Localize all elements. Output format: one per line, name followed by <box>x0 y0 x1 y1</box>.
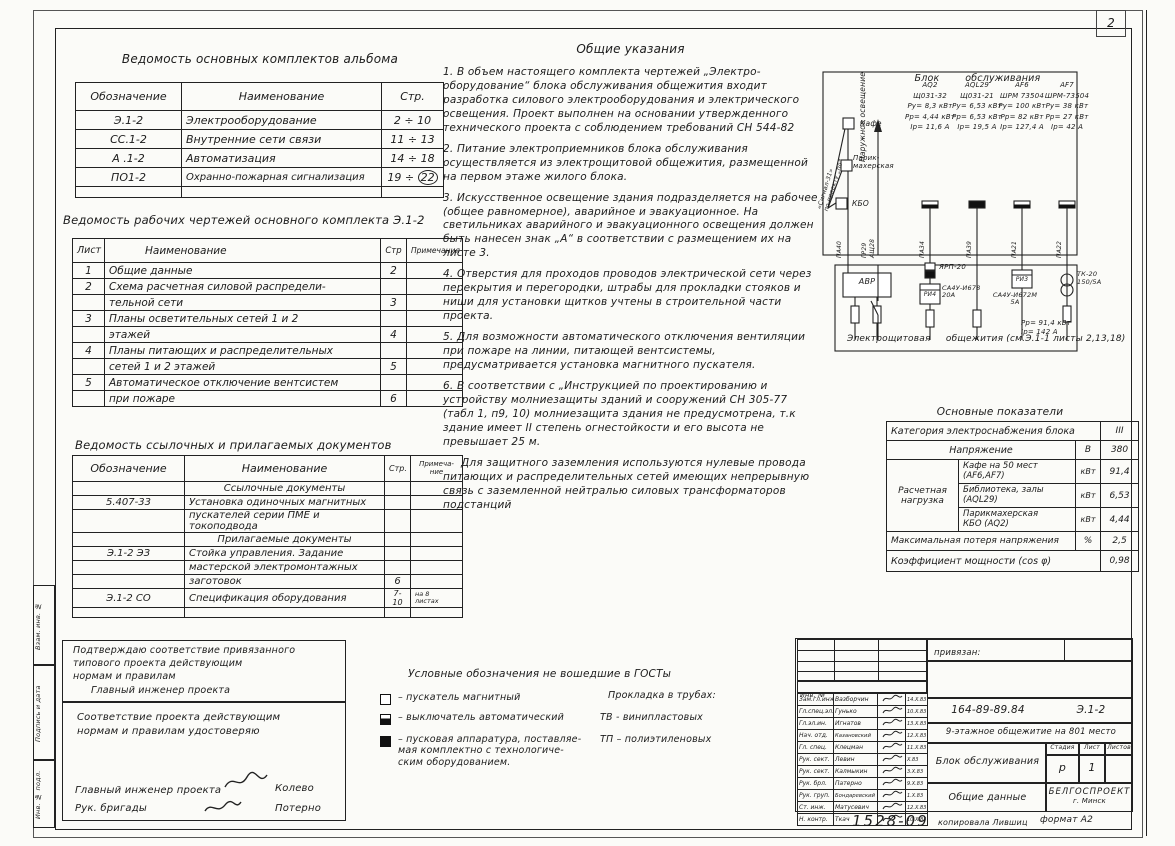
cell <box>385 510 411 533</box>
stage-value: р <box>1047 756 1078 774</box>
cell <box>411 561 463 575</box>
single-line-diagram: Блок обслуживания «Сигнал-31» по проекту… <box>815 58 1127 360</box>
legend-item-3: – пусковая аппаратура, поставляе- мая ко… <box>398 734 581 768</box>
cell: 11 ÷ 13 <box>382 130 444 149</box>
sheets-header: Листов <box>1105 743 1133 755</box>
cell: Электрооборудование <box>182 111 382 130</box>
sheet-number: 2 <box>1107 16 1115 30</box>
cell <box>381 279 407 295</box>
pin-label: привязан: <box>928 648 981 658</box>
meter1-note: СА4У-И678 20А <box>942 285 981 299</box>
cell <box>385 533 411 547</box>
cell <box>411 575 463 589</box>
sign-role: Рук. сект. <box>798 754 834 766</box>
content-name: Общие данные <box>928 792 1047 803</box>
margin-label-podpis: Подпись и дата <box>34 666 56 761</box>
cell <box>185 608 385 618</box>
cell: 2 <box>73 279 105 295</box>
tube-item-2: ТП – полиэтиленовых <box>600 734 711 745</box>
approval-statement-1: Подтверждаю соответствие привязанного ти… <box>73 645 339 683</box>
legend-item-1: – пускатель магнитный <box>398 692 520 703</box>
format-note: формат А2 <box>1040 815 1093 825</box>
tube-code: ТВ - <box>600 712 620 723</box>
working-table: Лист Наименование Стр Примечания 1Общие … <box>72 238 463 407</box>
reference-table: Обозначение Наименование Стр. Примеча- н… <box>72 455 463 618</box>
album-table: Обозначение Наименование Стр. Э.1-2Элект… <box>75 82 444 198</box>
cell <box>73 391 105 407</box>
sign-date: 12.X.83 <box>906 730 928 742</box>
working-table-title: Ведомость рабочих чертежей основного ком… <box>63 213 463 227</box>
stage-value-cell: р <box>1046 755 1079 783</box>
cell: заготовок <box>185 575 385 589</box>
grid-line <box>798 661 928 662</box>
tube-label: винипластовых <box>623 712 703 723</box>
signature-table: Зам.гл.инж.Вазборчин14.X.83 Гл.спец.эл.Г… <box>797 693 928 826</box>
copy-note: копировала Лившиц <box>938 818 1028 827</box>
margin-cell-vzam: Взам. инв. № <box>33 585 55 665</box>
load-label: Кафе на 50 мест (АF6,АF7) <box>959 460 1076 484</box>
cell <box>385 547 411 561</box>
approval-role-2b: Рук. бригады <box>75 803 147 814</box>
sign-date: X.83 <box>906 754 928 766</box>
cell <box>182 187 382 198</box>
cell <box>385 561 411 575</box>
cell: 5 <box>381 359 407 375</box>
org-name: БЕЛГОСПРОЕКТ <box>1047 784 1132 797</box>
avr-label: АВР <box>845 277 889 286</box>
cell <box>411 533 463 547</box>
reference-col-designation: Обозначение <box>73 456 185 482</box>
indicator-label: Напряжение <box>887 441 1076 460</box>
indicator-label: Максимальная потеря напряжения <box>887 532 1076 551</box>
cell: Планы питающих и распределительных <box>105 343 381 359</box>
working-col-name: Наименование <box>105 239 381 263</box>
cell <box>382 187 444 198</box>
feeder-4-labels: АF7 ШРМ-73504 Ру= 38 кВт Рр= 27 кВт Iр= … <box>1035 80 1099 133</box>
line-label-pa39: ПА39 <box>966 224 973 258</box>
feeder-name: АF7 <box>1035 80 1099 91</box>
working-col-sheet: Лист <box>73 239 105 263</box>
building-row: 9-этажное общежитие на 801 место <box>927 723 1133 743</box>
margin-cell-podpis: Подпись и дата <box>33 665 55 760</box>
signature-cell <box>878 694 906 706</box>
cell: 2 ÷ 10 <box>382 111 444 130</box>
album-col-name: Наименование <box>182 83 382 111</box>
sign-date: 3.X.83 <box>906 766 928 778</box>
load-label: Библиотека, залы (АQL29) <box>959 484 1076 508</box>
sheet-value: 1 <box>1080 756 1104 774</box>
cell: 7-10 <box>385 589 411 608</box>
cell <box>381 311 407 327</box>
indicator-unit: % <box>1076 532 1101 551</box>
cell: Э.1-2 <box>76 111 182 130</box>
margin-label-vzam: Взам. инв. № <box>34 586 56 666</box>
sheet-header: Лист <box>1079 743 1105 755</box>
cell <box>385 482 411 496</box>
cell: Внутренние сети связи <box>182 130 382 149</box>
reference-table-title: Ведомость ссылочных и прилагаемых докуме… <box>75 438 475 452</box>
grid-line <box>798 650 928 651</box>
tube-code: ТП – <box>600 734 622 745</box>
inv-number-row: Инв. № <box>797 681 927 693</box>
album-col-page: Стр. <box>382 83 444 111</box>
cell <box>73 575 185 589</box>
doc-code: Э.1-2 <box>1056 704 1126 716</box>
notes-title: Общие указания <box>443 42 818 58</box>
cell <box>381 343 407 359</box>
line-label-gr29: ГР29 <box>861 224 868 258</box>
meter2-note: СА4У-И672М 5А <box>987 292 1043 306</box>
signature-cell <box>878 706 906 718</box>
sign-role: Ст. инж. <box>798 802 834 814</box>
node-label-kbo: КБО <box>852 199 869 208</box>
cell: 19 ÷ 22 <box>382 168 444 187</box>
feeder-panel: ШРМ-73504 <box>1035 91 1099 102</box>
grid-line <box>798 671 928 672</box>
approval-name-2a: Колево <box>275 783 314 794</box>
line-label-pa40: ПА40 <box>836 224 843 258</box>
meter1-label: РИ4 <box>920 291 940 298</box>
load-value: 4,44 <box>1101 508 1139 532</box>
indicator-value: 0,98 <box>1101 551 1139 572</box>
cell: Охранно-пожарная сигнализация <box>182 168 382 187</box>
sign-role: Гл.эл.ин. <box>798 718 834 730</box>
cell: ПО1-2 <box>76 168 182 187</box>
cell: 4 <box>73 343 105 359</box>
sign-date: 10.X.83 <box>906 706 928 718</box>
content-row: Общие данные <box>927 783 1046 812</box>
margin-label-inv: Инв. № подл. <box>34 761 56 829</box>
tube-label: полиэтиленовых <box>625 734 712 745</box>
signature-cell <box>878 742 906 754</box>
cell <box>411 608 463 618</box>
cell: 6 <box>381 391 407 407</box>
node-label-cafe: Кафе <box>860 119 882 128</box>
cell: Э.1-2 СО <box>73 589 185 608</box>
cell: Спецификация оборудования <box>185 589 385 608</box>
sign-date: 1.X.83 <box>906 790 928 802</box>
line-label-pa34: ПА34 <box>919 224 926 258</box>
load-unit: кВт <box>1076 460 1101 484</box>
sign-date: 14.X.83 <box>906 694 928 706</box>
sign-role: Зам.гл.инж. <box>798 694 834 706</box>
approval-name-2b: Потерно <box>275 803 321 814</box>
general-notes: Общие указания 1. В объем настоящего ком… <box>443 42 818 513</box>
cell: Автоматизация <box>182 149 382 168</box>
load-label: Парикмахерская КБО (АQ2) <box>959 508 1076 532</box>
working-col-page: Стр <box>381 239 407 263</box>
indicators-title: Основные показатели <box>890 406 1110 418</box>
starting-equipment-icon <box>380 736 391 747</box>
signature-cell <box>878 754 906 766</box>
margin-cell-inv: Инв. № подл. <box>33 760 55 828</box>
line-label-pa22: ПА22 <box>1056 224 1063 258</box>
cell: Стойка управления. Задание <box>185 547 385 561</box>
sheet-value-cell: 1 <box>1079 755 1105 783</box>
cell: 6 <box>385 575 411 589</box>
sign-name: Бондаревский <box>834 790 878 802</box>
cell <box>73 327 105 343</box>
note-item-5: 5. Для возможности автоматического отклю… <box>443 331 818 373</box>
cell: тельной сети <box>105 295 381 311</box>
magnetic-starter-icon <box>380 694 391 705</box>
cell <box>73 561 185 575</box>
approval-role-2a: Главный инженер проекта <box>75 785 221 796</box>
project-code-row: 164-89-89.84 Э.1-2 <box>927 698 1133 723</box>
outdoor-lighting-label: Наружное освещение <box>859 62 868 162</box>
cell <box>73 510 185 533</box>
signature-cell <box>878 730 906 742</box>
circled-page: 22 <box>418 170 438 185</box>
cell: Схема расчетная силовой распредели- <box>105 279 381 295</box>
load-unit: кВт <box>1076 508 1101 532</box>
cell: пускателей серии ПМЕ и токоподвода <box>185 510 385 533</box>
cell <box>385 608 411 618</box>
sign-name: Калмыкин <box>834 766 878 778</box>
cell: Установка одиночных магнитных <box>185 496 385 510</box>
load-value: 6,53 <box>1101 484 1139 508</box>
signature-gip <box>223 771 269 793</box>
sign-role: Рук. сект. <box>798 766 834 778</box>
yarp-label: ЯРП-20 <box>939 263 966 271</box>
load-group-label: Расчетная нагрузка <box>887 460 959 532</box>
sheet-number-box: 2 <box>1096 10 1126 37</box>
sign-date: 13.X.83 <box>906 718 928 730</box>
note-item-6: 6. В соответствии с „Инструкцией по прое… <box>443 380 818 450</box>
right-double-line <box>1146 10 1147 836</box>
pin-empty-area <box>927 661 1133 698</box>
sign-name: Левин <box>834 754 878 766</box>
note-final: Для защитного заземления используются ну… <box>443 457 818 513</box>
cell: при пожаре <box>105 391 381 407</box>
circuit-breaker-icon <box>380 714 391 725</box>
cell: на 8 листах <box>411 589 463 608</box>
object-row: Блок обслуживания <box>927 743 1046 783</box>
sign-name: Игнатов <box>834 718 878 730</box>
tubes-title: Прокладка в трубах: <box>608 690 716 701</box>
indicator-value: 2,5 <box>1101 532 1139 551</box>
signature-cell <box>878 766 906 778</box>
indicator-unit: В <box>1076 441 1101 460</box>
cell <box>73 295 105 311</box>
legend-title: Условные обозначения не вошедшие в ГОСТы <box>408 668 738 680</box>
note-item-4: 4. Отверстия для проходов проводов элект… <box>443 268 818 324</box>
cell: СС.1-2 <box>76 130 182 149</box>
page-range-prefix: 19 ÷ <box>387 171 414 184</box>
cell <box>73 359 105 375</box>
load-value: 91,4 <box>1101 460 1139 484</box>
cell: 3 <box>73 311 105 327</box>
project-code: 164-89-89.84 <box>932 704 1044 716</box>
node-label-hairdresser: Парик- махерская <box>853 155 894 170</box>
sign-role: Рук. груп. <box>798 790 834 802</box>
line-label-pa21: ПА21 <box>1011 224 1018 258</box>
cell: 3 <box>381 295 407 311</box>
sheets-value <box>1106 756 1132 761</box>
cell <box>73 482 185 496</box>
indicators-table: Категория электроснабжения блокаIII Напр… <box>886 421 1139 572</box>
album-col-designation: Обозначение <box>76 83 182 111</box>
sheets-label: Листов <box>1106 744 1132 751</box>
object-name: Блок обслуживания <box>928 756 1047 767</box>
cell: Планы осветительных сетей 1 и 2 <box>105 311 381 327</box>
diagram-caption: Электрощитовая общежития (см.Э.1-1 листы… <box>847 334 1126 344</box>
sign-name: Клецман <box>834 742 878 754</box>
legend-item-2: – выключатель автоматический <box>398 712 564 723</box>
sign-role: Н. контр. <box>798 814 834 826</box>
revision-grid <box>797 639 927 681</box>
cell: 4 <box>381 327 407 343</box>
sign-name: Казановский <box>834 730 878 742</box>
cell: 14 ÷ 18 <box>382 149 444 168</box>
cell <box>411 510 463 533</box>
indicator-label: Категория электроснабжения блока <box>887 422 1101 441</box>
cell: Общие данные <box>105 263 381 279</box>
cell: Ссылочные документы <box>185 482 385 496</box>
note-item-1: 1. В объем настоящего комплекта чертежей… <box>443 66 818 136</box>
album-table-title: Ведомость основных комплектов альбома <box>75 52 445 66</box>
signature-cell <box>878 790 906 802</box>
feeder-pu: Ру= 38 кВт <box>1035 101 1099 112</box>
sign-name: Патерно <box>834 778 878 790</box>
cell <box>385 496 411 510</box>
cell <box>73 608 185 618</box>
tube-item-1: ТВ - винипластовых <box>600 712 703 723</box>
reference-col-page: Стр. <box>385 456 411 482</box>
sign-name: Гунько <box>834 706 878 718</box>
sign-name: Вазборчин <box>834 694 878 706</box>
cell: Автоматическое отключение вентсистем <box>105 375 381 391</box>
signature-cell <box>878 718 906 730</box>
cell: этажей <box>105 327 381 343</box>
cell: 1 <box>73 263 105 279</box>
cell: 2 <box>381 263 407 279</box>
title-block: Инв. № Зам.гл.инж.Вазборчин14.X.83 Гл.сп… <box>795 638 1133 812</box>
feeder-ip: Iр= 42 А <box>1035 122 1099 133</box>
cell: Прилагаемые документы <box>185 533 385 547</box>
pin-row: привязан: <box>927 639 1133 661</box>
doc-number-hand: 1528-09 <box>852 812 929 830</box>
approval-statement-2: Соответствие проекта действующим нормам … <box>77 711 337 739</box>
cell: Э.1-2 ЭЗ <box>73 547 185 561</box>
signature-cell <box>878 778 906 790</box>
cell: сетей 1 и 2 этажей <box>105 359 381 375</box>
sign-date: 9.X.83 <box>906 778 928 790</box>
load-unit: кВт <box>1076 484 1101 508</box>
building-name: 9-этажное общежитие на 801 место <box>928 727 1134 737</box>
tk-label: ТК-20 150/5А <box>1077 270 1101 287</box>
approval-role-1: Главный инженер проекта <box>91 685 230 696</box>
sheet-label: Лист <box>1080 744 1104 751</box>
meter2-label: РИ3 <box>1012 276 1032 283</box>
feeder-pp: Рр= 27 кВт <box>1035 112 1099 123</box>
cell: А .1-2 <box>76 149 182 168</box>
line-label-asch28: АЩ28 <box>869 224 876 258</box>
stage-header: Стадия <box>1046 743 1079 755</box>
sign-role: Нач. отд. <box>798 730 834 742</box>
pin-divider <box>1064 640 1065 662</box>
cell <box>76 187 182 198</box>
org-cell: БЕЛГОСПРОЕКТ г. Минск <box>1046 783 1133 812</box>
indicator-value: III <box>1101 422 1139 441</box>
indicator-label: Коэффициент мощности (cos φ) <box>887 551 1101 572</box>
approval-box-1: Подтверждаю соответствие привязанного ти… <box>62 640 346 702</box>
cell: мастерской электромонтажных <box>185 561 385 575</box>
cell <box>411 547 463 561</box>
cell <box>73 533 185 547</box>
approval-box-2: Соответствие проекта действующим нормам … <box>62 702 346 821</box>
org-city: г. Минск <box>1047 797 1132 805</box>
signature-brigade <box>203 799 243 817</box>
sign-role: Гл. спец. <box>798 742 834 754</box>
sign-date: 11.X.83 <box>906 742 928 754</box>
cell: 5.407-33 <box>73 496 185 510</box>
sheet: 2 Взам. инв. № Подпись и дата Инв. № под… <box>0 0 1175 846</box>
note-item-2: 2. Питание электроприемников блока обслу… <box>443 143 818 185</box>
reference-col-name: Наименование <box>185 456 385 482</box>
sign-role: Гл.спец.эл. <box>798 706 834 718</box>
cell: 5 <box>73 375 105 391</box>
indicator-value: 380 <box>1101 441 1139 460</box>
cell <box>381 375 407 391</box>
note-item-3: 3. Искусственное освещение здания подраз… <box>443 192 818 262</box>
stage-label: Стадия <box>1047 744 1078 751</box>
sheets-value-cell <box>1105 755 1133 783</box>
sign-role: Рук. брл. <box>798 778 834 790</box>
